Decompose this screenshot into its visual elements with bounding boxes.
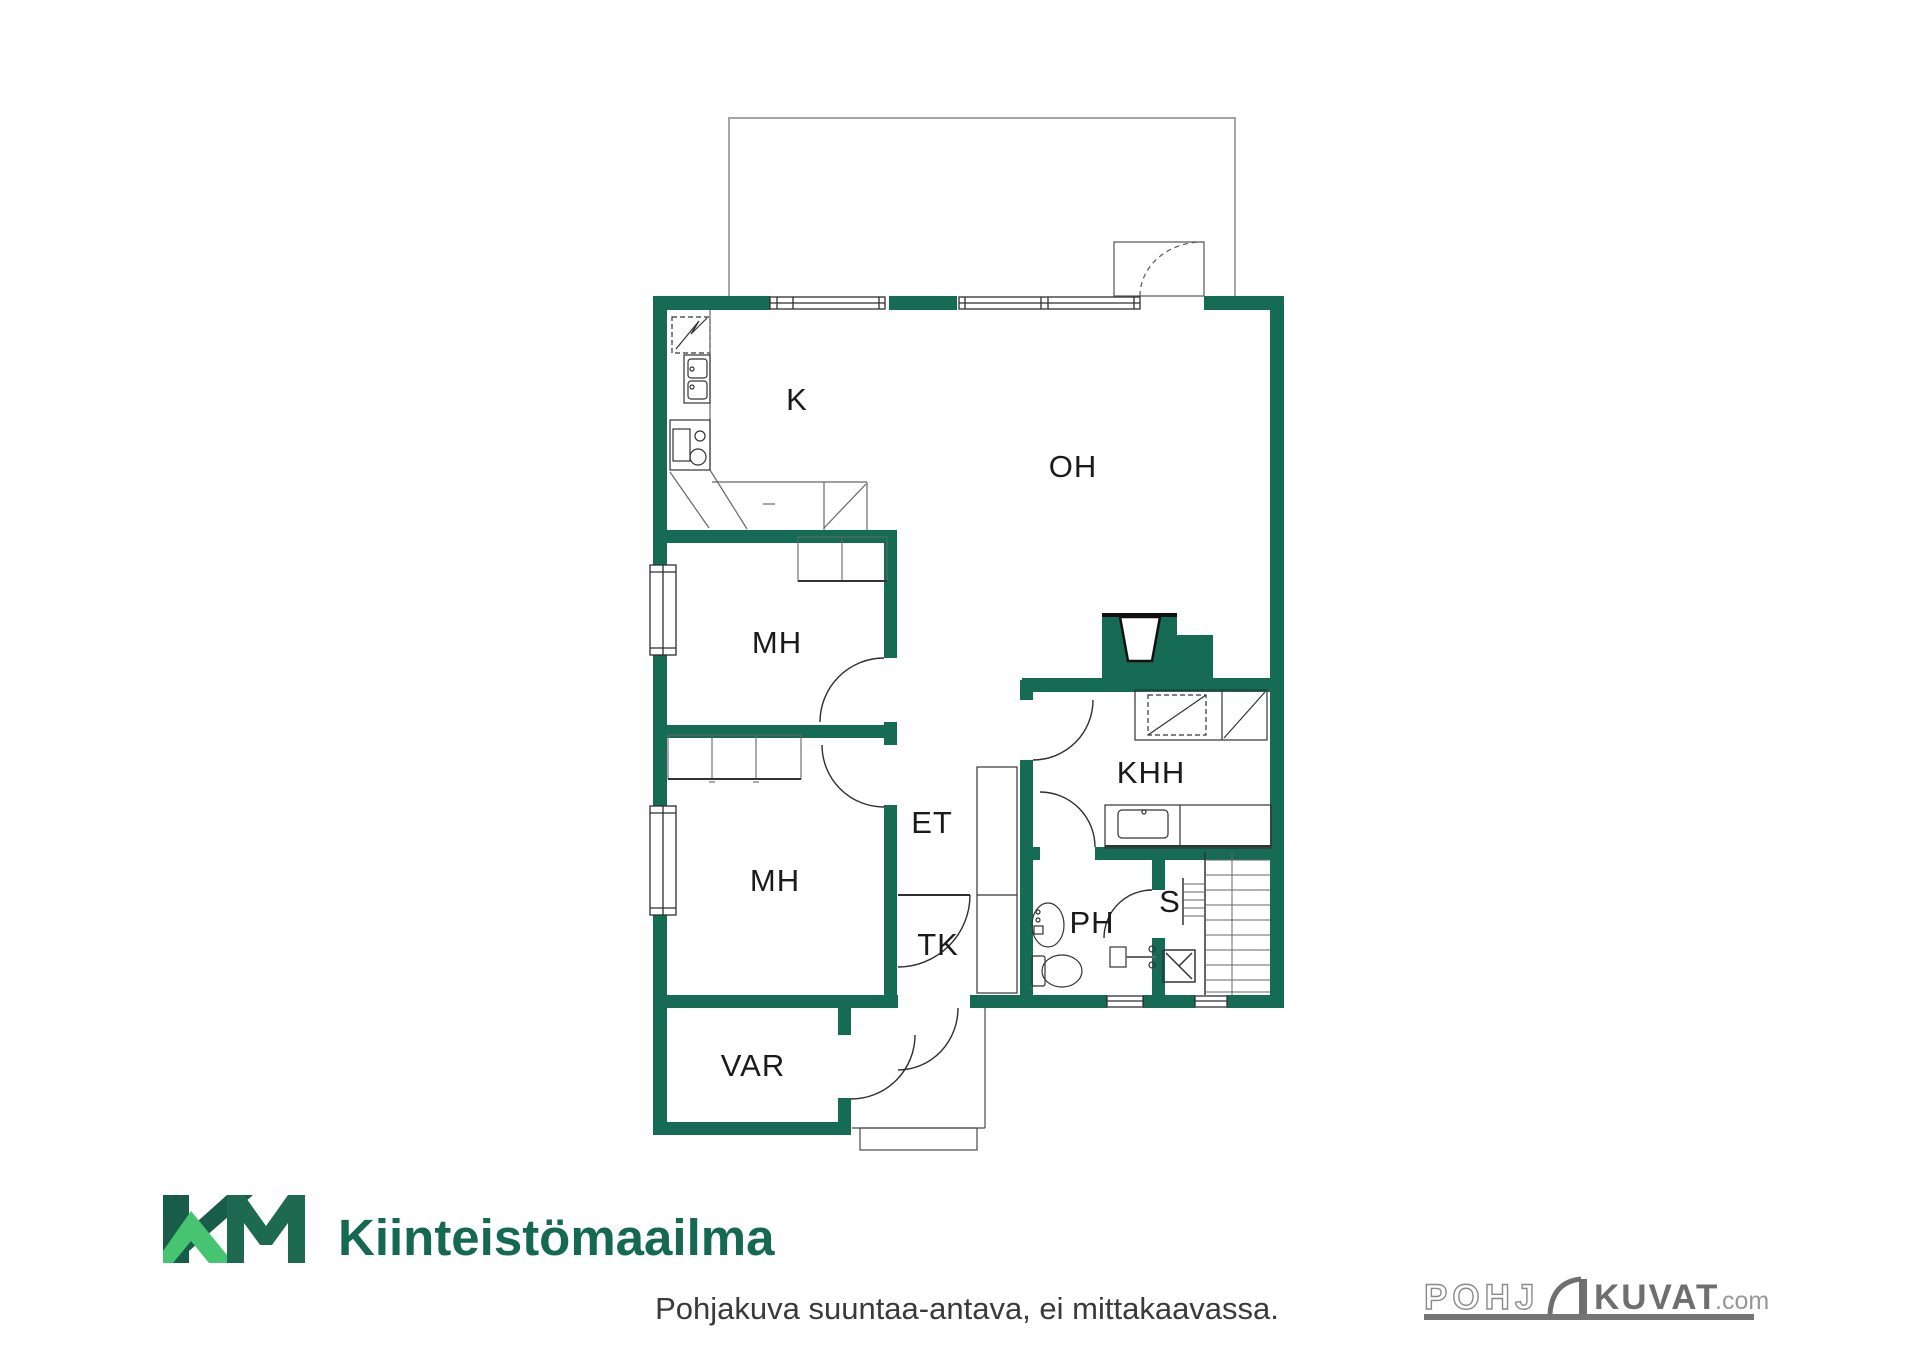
shower-symbol [1110,946,1156,968]
door-glyph-icon [1550,1279,1581,1314]
room-label-draft-lobby: TK [917,927,959,963]
terrace-door [1114,242,1204,296]
kitchen-peninsula [712,482,867,530]
bedroom1-door-arc [820,658,884,722]
disclaimer-text: Pohjakuva suuntaa-antava, ei mittakaavas… [655,1291,1279,1327]
floor-plan-drawing [0,0,1920,1358]
bedroom2-wardrobe [668,735,801,782]
lobby-cabinet [977,767,1017,993]
sauna-fixtures [1163,852,1270,995]
corner-cabinet-symbol [710,470,747,529]
front-door-arc [898,1008,958,1070]
room-label-washroom: PH [1069,905,1114,941]
terrace-outline [729,118,1235,296]
toilet-symbol [1032,955,1082,987]
watermark-com: .com [1715,1287,1768,1315]
fridge-symbol [676,318,707,349]
washroom-door-arc [1040,792,1095,847]
washbasin-symbol [1032,903,1064,947]
corner-cabinet-symbol [670,472,709,528]
room-label-utility-room: KHH [1117,755,1185,791]
washing-machines-symbol [1135,690,1267,740]
company-name: Kiinteistömaailma [338,1208,774,1267]
bedroom2-door-arc [822,745,884,807]
watermark-pohj: POHJ [1424,1278,1539,1317]
sauna-stove-symbol [1163,950,1195,982]
room-label-entry-hall: ET [911,805,953,841]
room-label-living-room: OH [1049,449,1098,485]
kitchen-fixtures [670,310,867,530]
stove-symbol [670,420,710,470]
watermark-kuvat: KUVAT [1594,1278,1719,1317]
kitchen-sink-symbol [684,355,710,403]
room-label-sauna: S [1159,884,1181,920]
storage-door-arc [851,1035,915,1099]
bedroom1-wardrobe [798,537,887,581]
room-label-storage: VAR [721,1048,785,1084]
entrance-porch [852,1008,985,1150]
room-label-bedroom-1: MH [752,625,802,661]
pohjakuvat-watermark: POHJ KUVAT .com [1418,1266,1768,1326]
utility-door-arc [1033,700,1093,760]
floor-plan-page: K OH MH MH ET KHH TK PH S VAR Kiinteistö… [0,0,1920,1358]
walls [653,296,1284,1135]
room-label-kitchen: K [786,382,808,418]
utility-counter-symbol [1105,805,1271,848]
door-glyph-icon [1579,1279,1587,1314]
km-monogram-icon [163,1195,313,1263]
sauna-benches [1183,852,1270,995]
room-label-bedroom-2: MH [750,863,800,899]
